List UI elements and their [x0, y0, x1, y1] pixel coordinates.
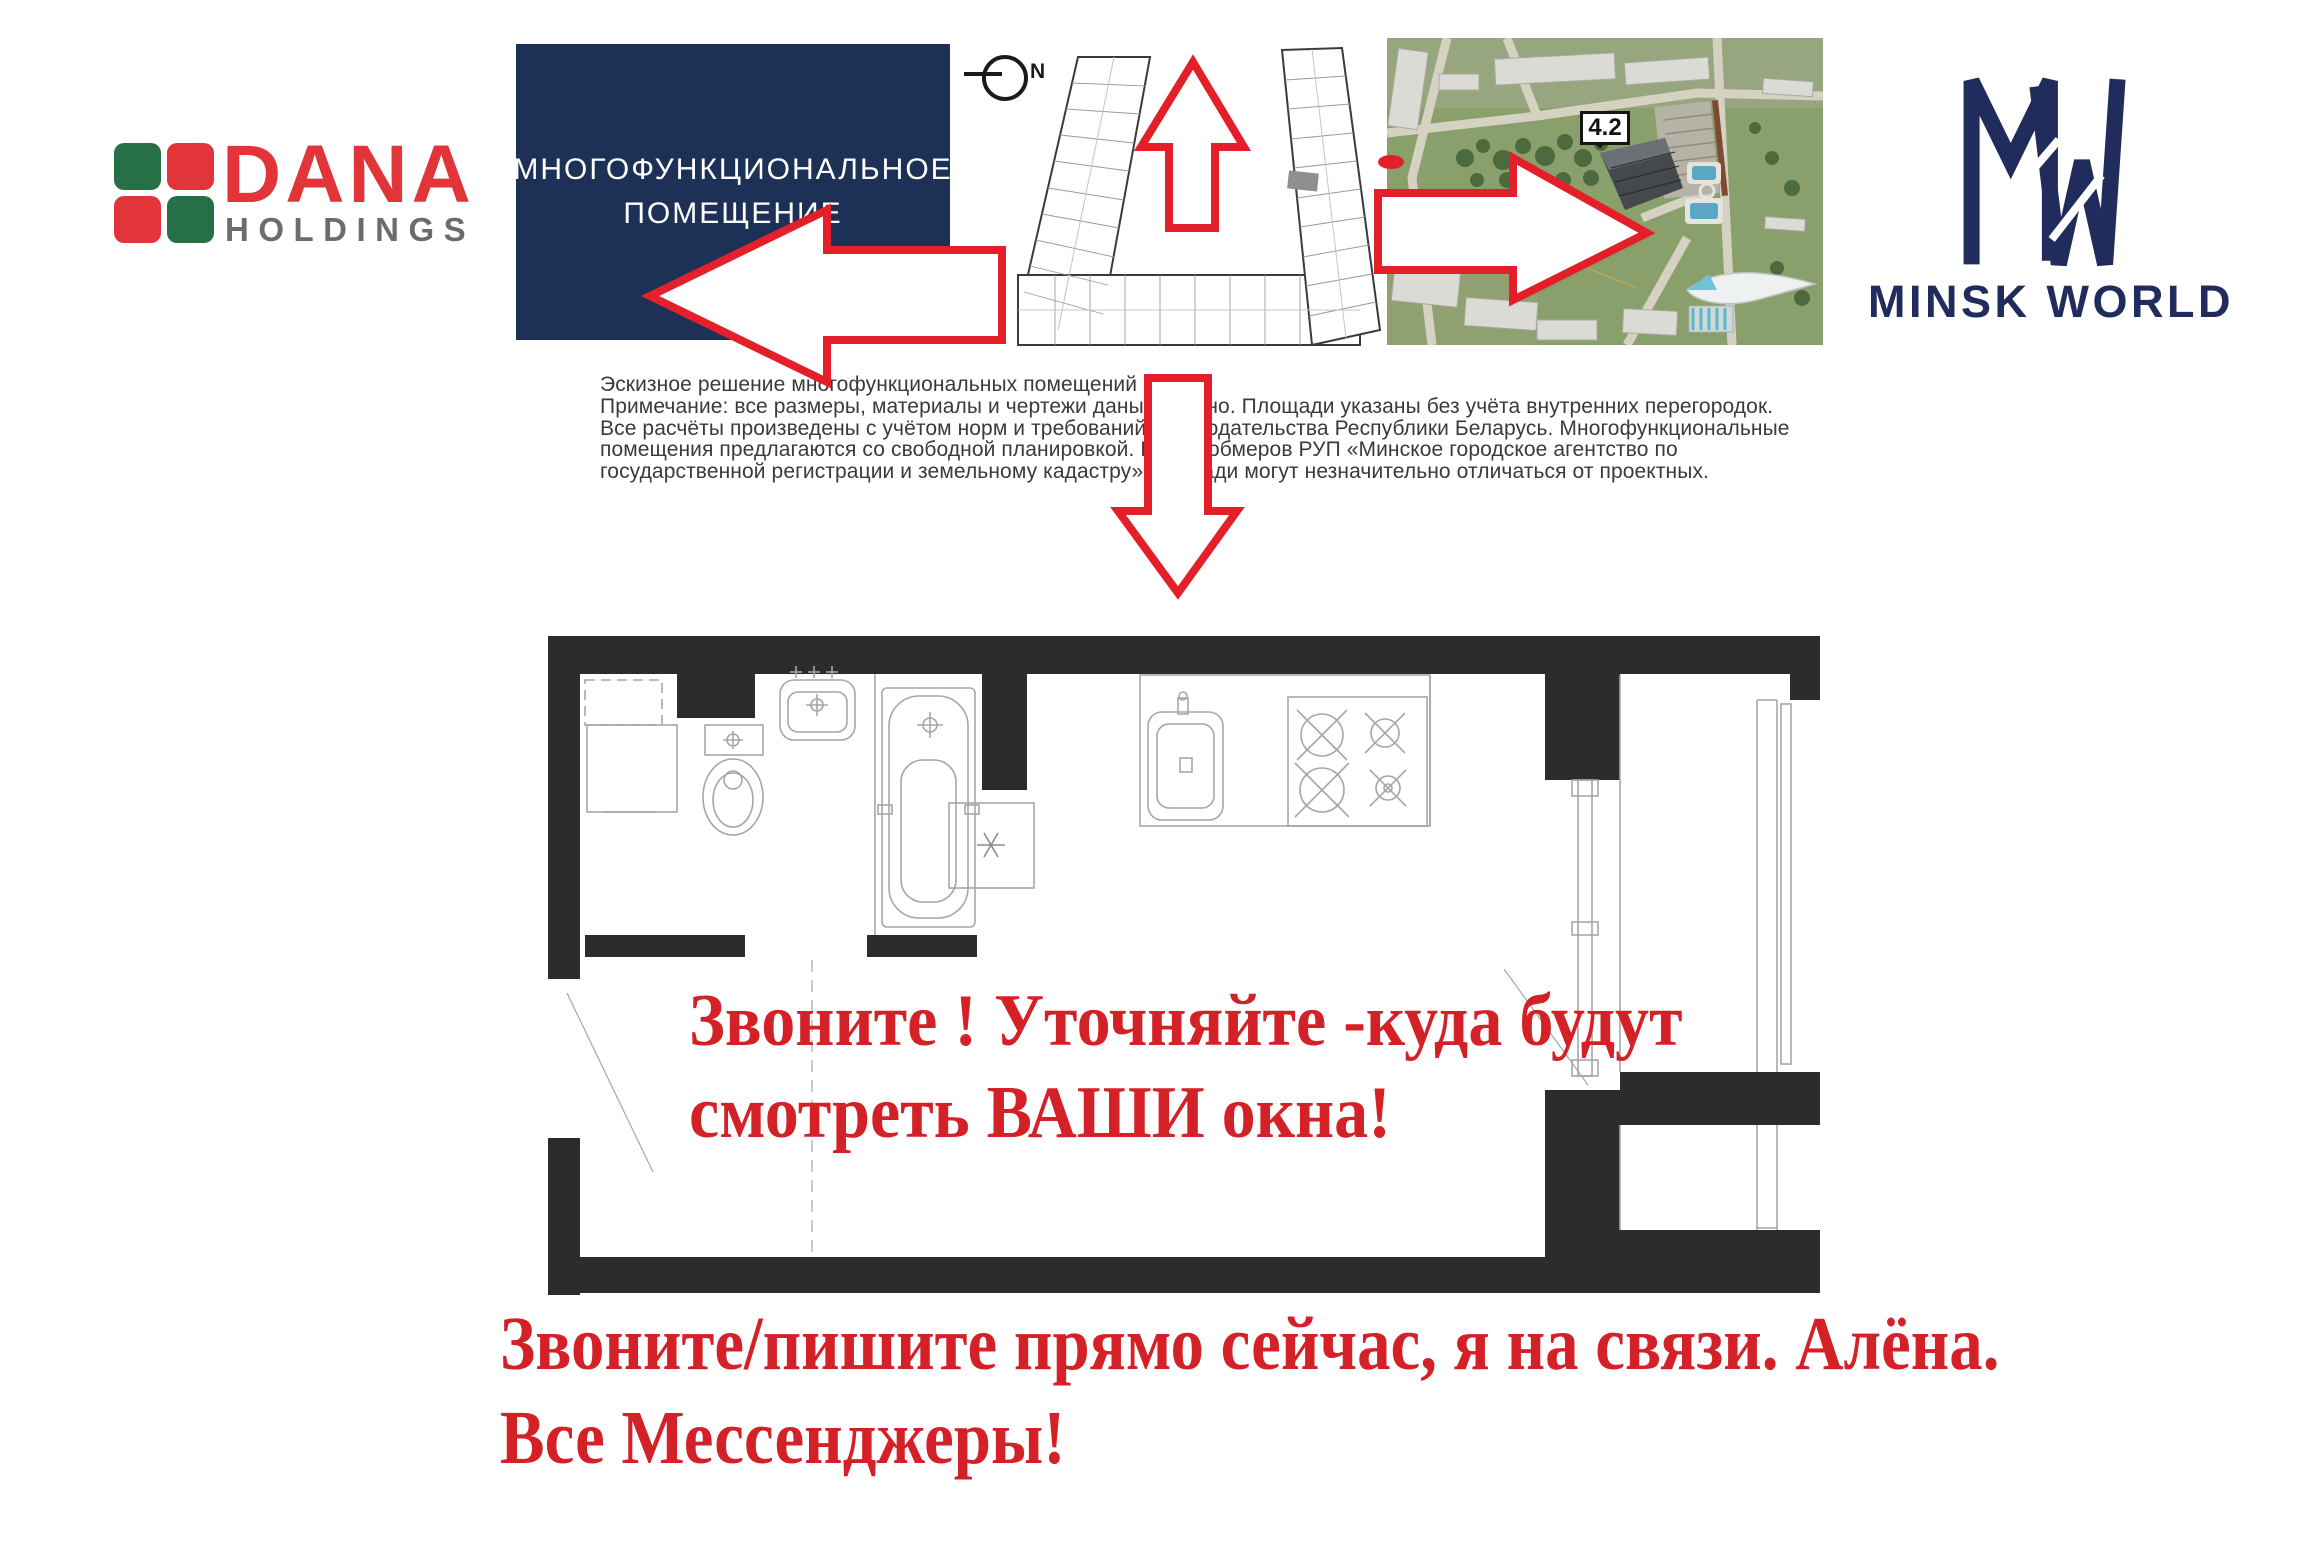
contact-note-line-1: Звоните/пишите прямо сейчас, я на связи.…	[500, 1306, 1999, 1382]
up-arrow-icon	[1141, 62, 1244, 228]
right-arrow-icon	[1378, 158, 1647, 300]
red-marker-icon	[1378, 155, 1404, 169]
contact-note-text: Звоните/пишите прямо сейчас, я на связи.…	[500, 1306, 2204, 1476]
flyer-canvas: DANA HOLDINGS МНОГОФУНКЦИОНАЛЬНОЕ ПОМЕЩЕ…	[0, 0, 2324, 1546]
contact-note-line-2: Все Мессенджеры!	[500, 1400, 1999, 1476]
window-note-line-2: смотреть ВАШИ окна!	[689, 1076, 1683, 1150]
window-note-line-1: Звоните ! Уточняйте -куда будут	[689, 984, 1683, 1058]
window-note-text: Звоните ! Уточняйте -куда будут смотреть…	[689, 984, 1769, 1150]
left-arrow-icon	[650, 210, 1002, 382]
down-arrow-icon	[1118, 378, 1237, 593]
